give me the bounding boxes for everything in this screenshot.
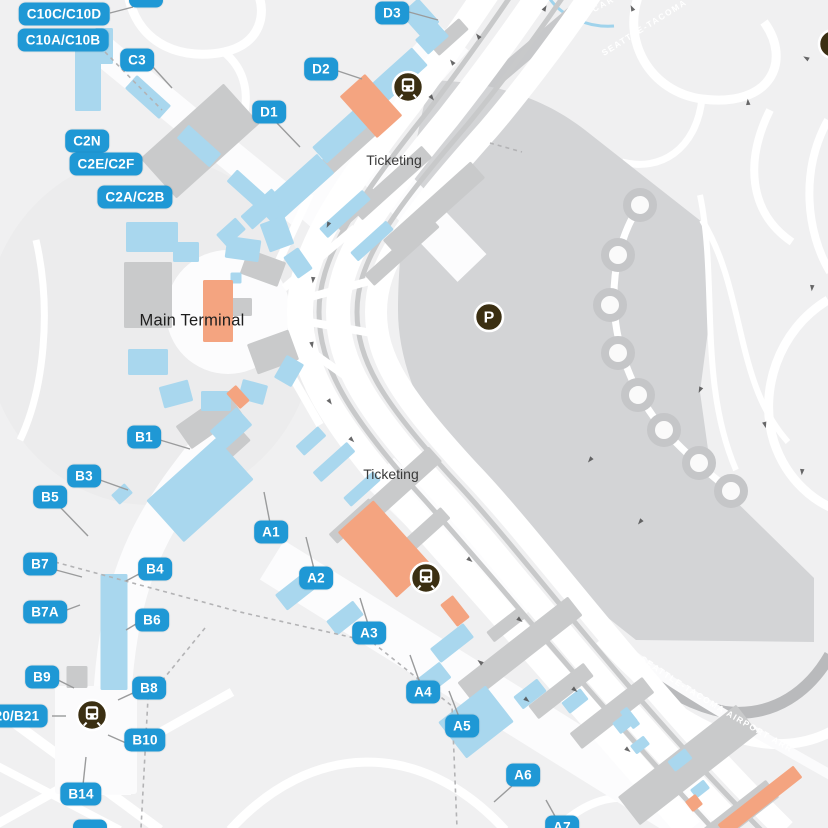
- gate-badge-b8[interactable]: B8: [132, 677, 166, 700]
- gate-badge-c2ab[interactable]: C2A/C2B: [97, 186, 172, 209]
- gate-badge-b20b21[interactable]: B20/B21: [0, 705, 47, 728]
- gate-badge-d3[interactable]: D3: [375, 2, 409, 25]
- gate-badge-c2n[interactable]: C2N: [65, 130, 109, 153]
- gate-badge-b7[interactable]: B7: [23, 553, 57, 576]
- ticketing-north-label: Ticketing: [366, 152, 422, 168]
- gate-badge-a5[interactable]: A5: [445, 715, 479, 738]
- train-station-marker-b-satellite[interactable]: [77, 700, 107, 730]
- gate-badge-c10ab[interactable]: C10A/C10B: [18, 29, 109, 52]
- gate-badge-pbot[interactable]: [73, 820, 107, 828]
- gate-badge-b9[interactable]: B9: [25, 666, 59, 689]
- ticketing-south-label: Ticketing: [363, 466, 419, 482]
- gate-badge-a6[interactable]: A6: [506, 764, 540, 787]
- gate-badge-b14[interactable]: B14: [60, 783, 101, 806]
- gate-badge-b1[interactable]: B1: [127, 426, 161, 449]
- train-station-marker-south[interactable]: [411, 563, 441, 593]
- parking-marker-main[interactable]: P: [475, 303, 503, 331]
- gate-badge-b3[interactable]: B3: [67, 465, 101, 488]
- train-station-marker-north[interactable]: [393, 72, 423, 102]
- gate-badge-c3[interactable]: C3: [120, 49, 154, 72]
- main-terminal-label: Main Terminal: [140, 312, 245, 331]
- airport-map: AIR CARGO SEATTLE-TACOMA SEATTLE-TACOMA …: [0, 0, 828, 828]
- gate-badge-b5[interactable]: B5: [33, 486, 67, 509]
- gate-badge-c10cd[interactable]: C10C/C10D: [19, 3, 110, 26]
- gate-badge-b4[interactable]: B4: [138, 558, 172, 581]
- gate-badge-b10[interactable]: B10: [124, 729, 165, 752]
- gate-badge-d2[interactable]: D2: [304, 58, 338, 81]
- svg-text:P: P: [484, 310, 495, 327]
- gate-badge-a4[interactable]: A4: [406, 681, 440, 704]
- gate-badge-c2ef[interactable]: C2E/C2F: [70, 153, 143, 176]
- gate-badge-b7a[interactable]: B7A: [23, 601, 67, 624]
- map-canvas: AIR CARGO SEATTLE-TACOMA SEATTLE-TACOMA …: [0, 0, 828, 828]
- gate-badge-a2[interactable]: A2: [299, 567, 333, 590]
- gate-badge-a7[interactable]: A7: [545, 816, 579, 828]
- gate-badge-d1[interactable]: D1: [252, 101, 286, 124]
- gate-badge-b6[interactable]: B6: [135, 609, 169, 632]
- gate-badge-ptop[interactable]: [129, 0, 163, 8]
- gate-badge-a1[interactable]: A1: [254, 521, 288, 544]
- gate-badge-a3[interactable]: A3: [352, 622, 386, 645]
